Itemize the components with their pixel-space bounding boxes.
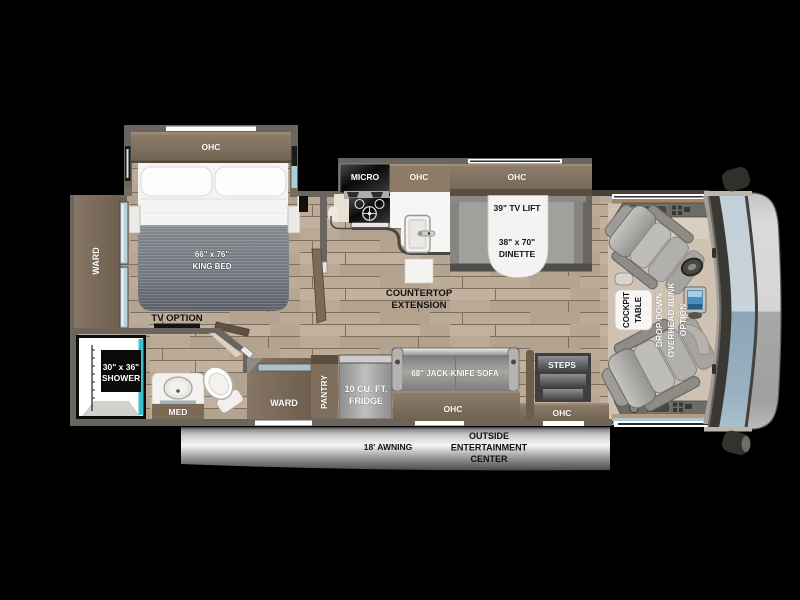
svg-text:68" JACK-KNIFE SOFA: 68" JACK-KNIFE SOFA — [411, 369, 499, 378]
svg-text:COCKPIT: COCKPIT — [622, 292, 631, 328]
svg-text:WARD: WARD — [270, 398, 298, 408]
svg-text:COUNTERTOP: COUNTERTOP — [386, 288, 453, 299]
svg-text:MED: MED — [169, 407, 188, 417]
svg-text:OVERHEAD BUNK: OVERHEAD BUNK — [666, 282, 676, 358]
svg-text:FRIDGE: FRIDGE — [349, 396, 383, 406]
svg-text:DINETTE: DINETTE — [499, 249, 536, 259]
svg-text:KING BED: KING BED — [192, 262, 231, 271]
svg-text:TV OPTION: TV OPTION — [151, 313, 202, 324]
svg-text:OHC: OHC — [202, 142, 221, 152]
svg-text:STEPS: STEPS — [548, 360, 576, 370]
svg-text:OHC: OHC — [444, 404, 463, 414]
svg-text:10 CU. FT.: 10 CU. FT. — [344, 384, 387, 394]
svg-text:TABLE: TABLE — [634, 296, 643, 323]
svg-text:EXTENSION: EXTENSION — [392, 300, 447, 311]
svg-text:18' AWNING: 18' AWNING — [364, 442, 413, 452]
svg-text:OHC: OHC — [508, 172, 527, 182]
svg-text:CENTER: CENTER — [470, 454, 508, 464]
svg-text:39" TV LIFT: 39" TV LIFT — [493, 203, 541, 213]
svg-text:SHOWER: SHOWER — [102, 373, 140, 383]
svg-text:38" x 70": 38" x 70" — [499, 237, 535, 247]
svg-text:WARD: WARD — [91, 247, 101, 275]
svg-text:PANTRY: PANTRY — [319, 375, 329, 409]
svg-text:30" x 36": 30" x 36" — [103, 362, 139, 372]
svg-text:OHC: OHC — [553, 408, 572, 418]
svg-text:DROP-DOWN: DROP-DOWN — [654, 293, 664, 347]
svg-text:OUTSIDE: OUTSIDE — [469, 431, 509, 441]
svg-text:MICRO: MICRO — [351, 172, 380, 182]
svg-text:OPTION: OPTION — [678, 304, 688, 337]
svg-text:ENTERTAINMENT: ENTERTAINMENT — [451, 443, 528, 453]
svg-text:66" x 76": 66" x 76" — [195, 250, 229, 259]
svg-text:OHC: OHC — [410, 172, 429, 182]
